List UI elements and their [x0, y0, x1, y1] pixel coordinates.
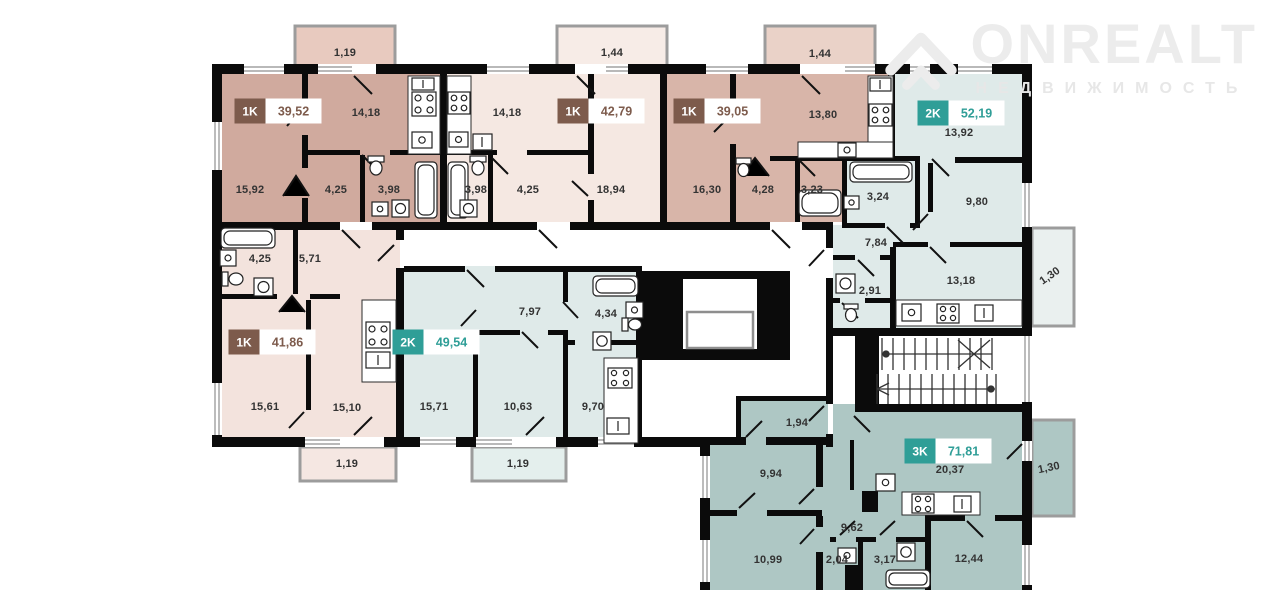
room-area-label: 1,94 [786, 417, 808, 429]
room-area-label: 9,62 [841, 522, 863, 534]
balcony-area-label: 1,19 [334, 47, 356, 59]
unit-badge-e: 1K 41,86 [229, 330, 316, 355]
stairs [877, 338, 996, 404]
room-area-label: 4,34 [595, 308, 617, 320]
unit-type: 1K [235, 99, 266, 124]
elevator [640, 271, 790, 360]
balcony-area-label: 1,44 [601, 47, 623, 59]
balcony-area-label: 1,19 [507, 458, 529, 470]
room-area-label: 18,94 [597, 184, 626, 196]
room-area-label: 2,04 [826, 554, 848, 566]
room-area-label: 7,84 [865, 237, 887, 249]
room-area-label: 3,17 [874, 554, 896, 566]
room-area-label: 3,98 [465, 184, 487, 196]
room-area-label: 15,61 [251, 401, 280, 413]
unit-badge-b: 1K 42,79 [558, 99, 645, 124]
room-area-label: 4,25 [325, 184, 347, 196]
room-area-label: 13,18 [947, 275, 976, 287]
room-area-label: 12,44 [955, 553, 984, 565]
house-icon [879, 16, 963, 109]
unit-area: 52,19 [949, 101, 1005, 126]
unit-type: 2K [918, 101, 949, 126]
room-area-label: 13,80 [809, 109, 838, 121]
unit-type: 1K [558, 99, 589, 124]
brand-tagline: НЕДВИЖИМОСТЬ [976, 80, 1259, 98]
unit-type: 2K [393, 330, 424, 355]
balcony-area-label: 1,44 [809, 48, 831, 60]
brand-logo: ONREALT НЕДВИЖИМОСТЬ [879, 16, 1259, 109]
room-area-label: 14,18 [493, 107, 522, 119]
unit-type: 1K [229, 330, 260, 355]
room-area-label: 4,28 [752, 184, 774, 196]
unit-area: 71,81 [936, 439, 992, 464]
room-area-label: 2,91 [859, 285, 881, 297]
room-area-label: 7,97 [519, 306, 541, 318]
room-area-label: 9,70 [582, 401, 604, 413]
balcony-area-label: 1,19 [336, 458, 358, 470]
unit-badge-g: 3K 71,81 [905, 439, 992, 464]
brand-name: ONREALT [971, 16, 1259, 72]
room-area-label: 20,37 [936, 464, 965, 476]
room-area-label: 14,18 [352, 107, 381, 119]
room-area-label: 10,99 [754, 554, 783, 566]
unit-badge-a: 1K 39,52 [235, 99, 322, 124]
room-area-label: 4,25 [249, 253, 271, 265]
unit-area: 39,52 [266, 99, 322, 124]
room-area-label: 16,30 [693, 184, 722, 196]
unit-type: 1K [674, 99, 705, 124]
room-area-label: 5,71 [299, 253, 321, 265]
room-area-label: 4,25 [517, 184, 539, 196]
unit-badge-c: 1K 39,05 [674, 99, 761, 124]
room-area-label: 13,92 [945, 127, 974, 139]
unit-area: 39,05 [705, 99, 761, 124]
room-area-label: 15,92 [236, 184, 265, 196]
unit-area: 49,54 [424, 330, 480, 355]
room-area-label: 3,23 [801, 184, 823, 196]
room-area-label: 10,63 [504, 401, 533, 413]
room-area-label: 15,71 [420, 401, 449, 413]
floor-plan-page: ONREALT НЕДВИЖИМОСТЬ 1K 39,52 1K 42,79 1… [0, 0, 1280, 590]
unit-type: 3K [905, 439, 936, 464]
unit-area: 42,79 [589, 99, 645, 124]
room-area-label: 3,24 [867, 191, 889, 203]
room-area-label: 15,10 [333, 402, 362, 414]
unit-badge-d: 2K 52,19 [918, 101, 1005, 126]
room-area-label: 9,94 [760, 468, 782, 480]
room-area-label: 9,80 [966, 196, 988, 208]
room-area-label: 3,98 [378, 184, 400, 196]
unit-area: 41,86 [260, 330, 316, 355]
unit-badge-f: 2K 49,54 [393, 330, 480, 355]
